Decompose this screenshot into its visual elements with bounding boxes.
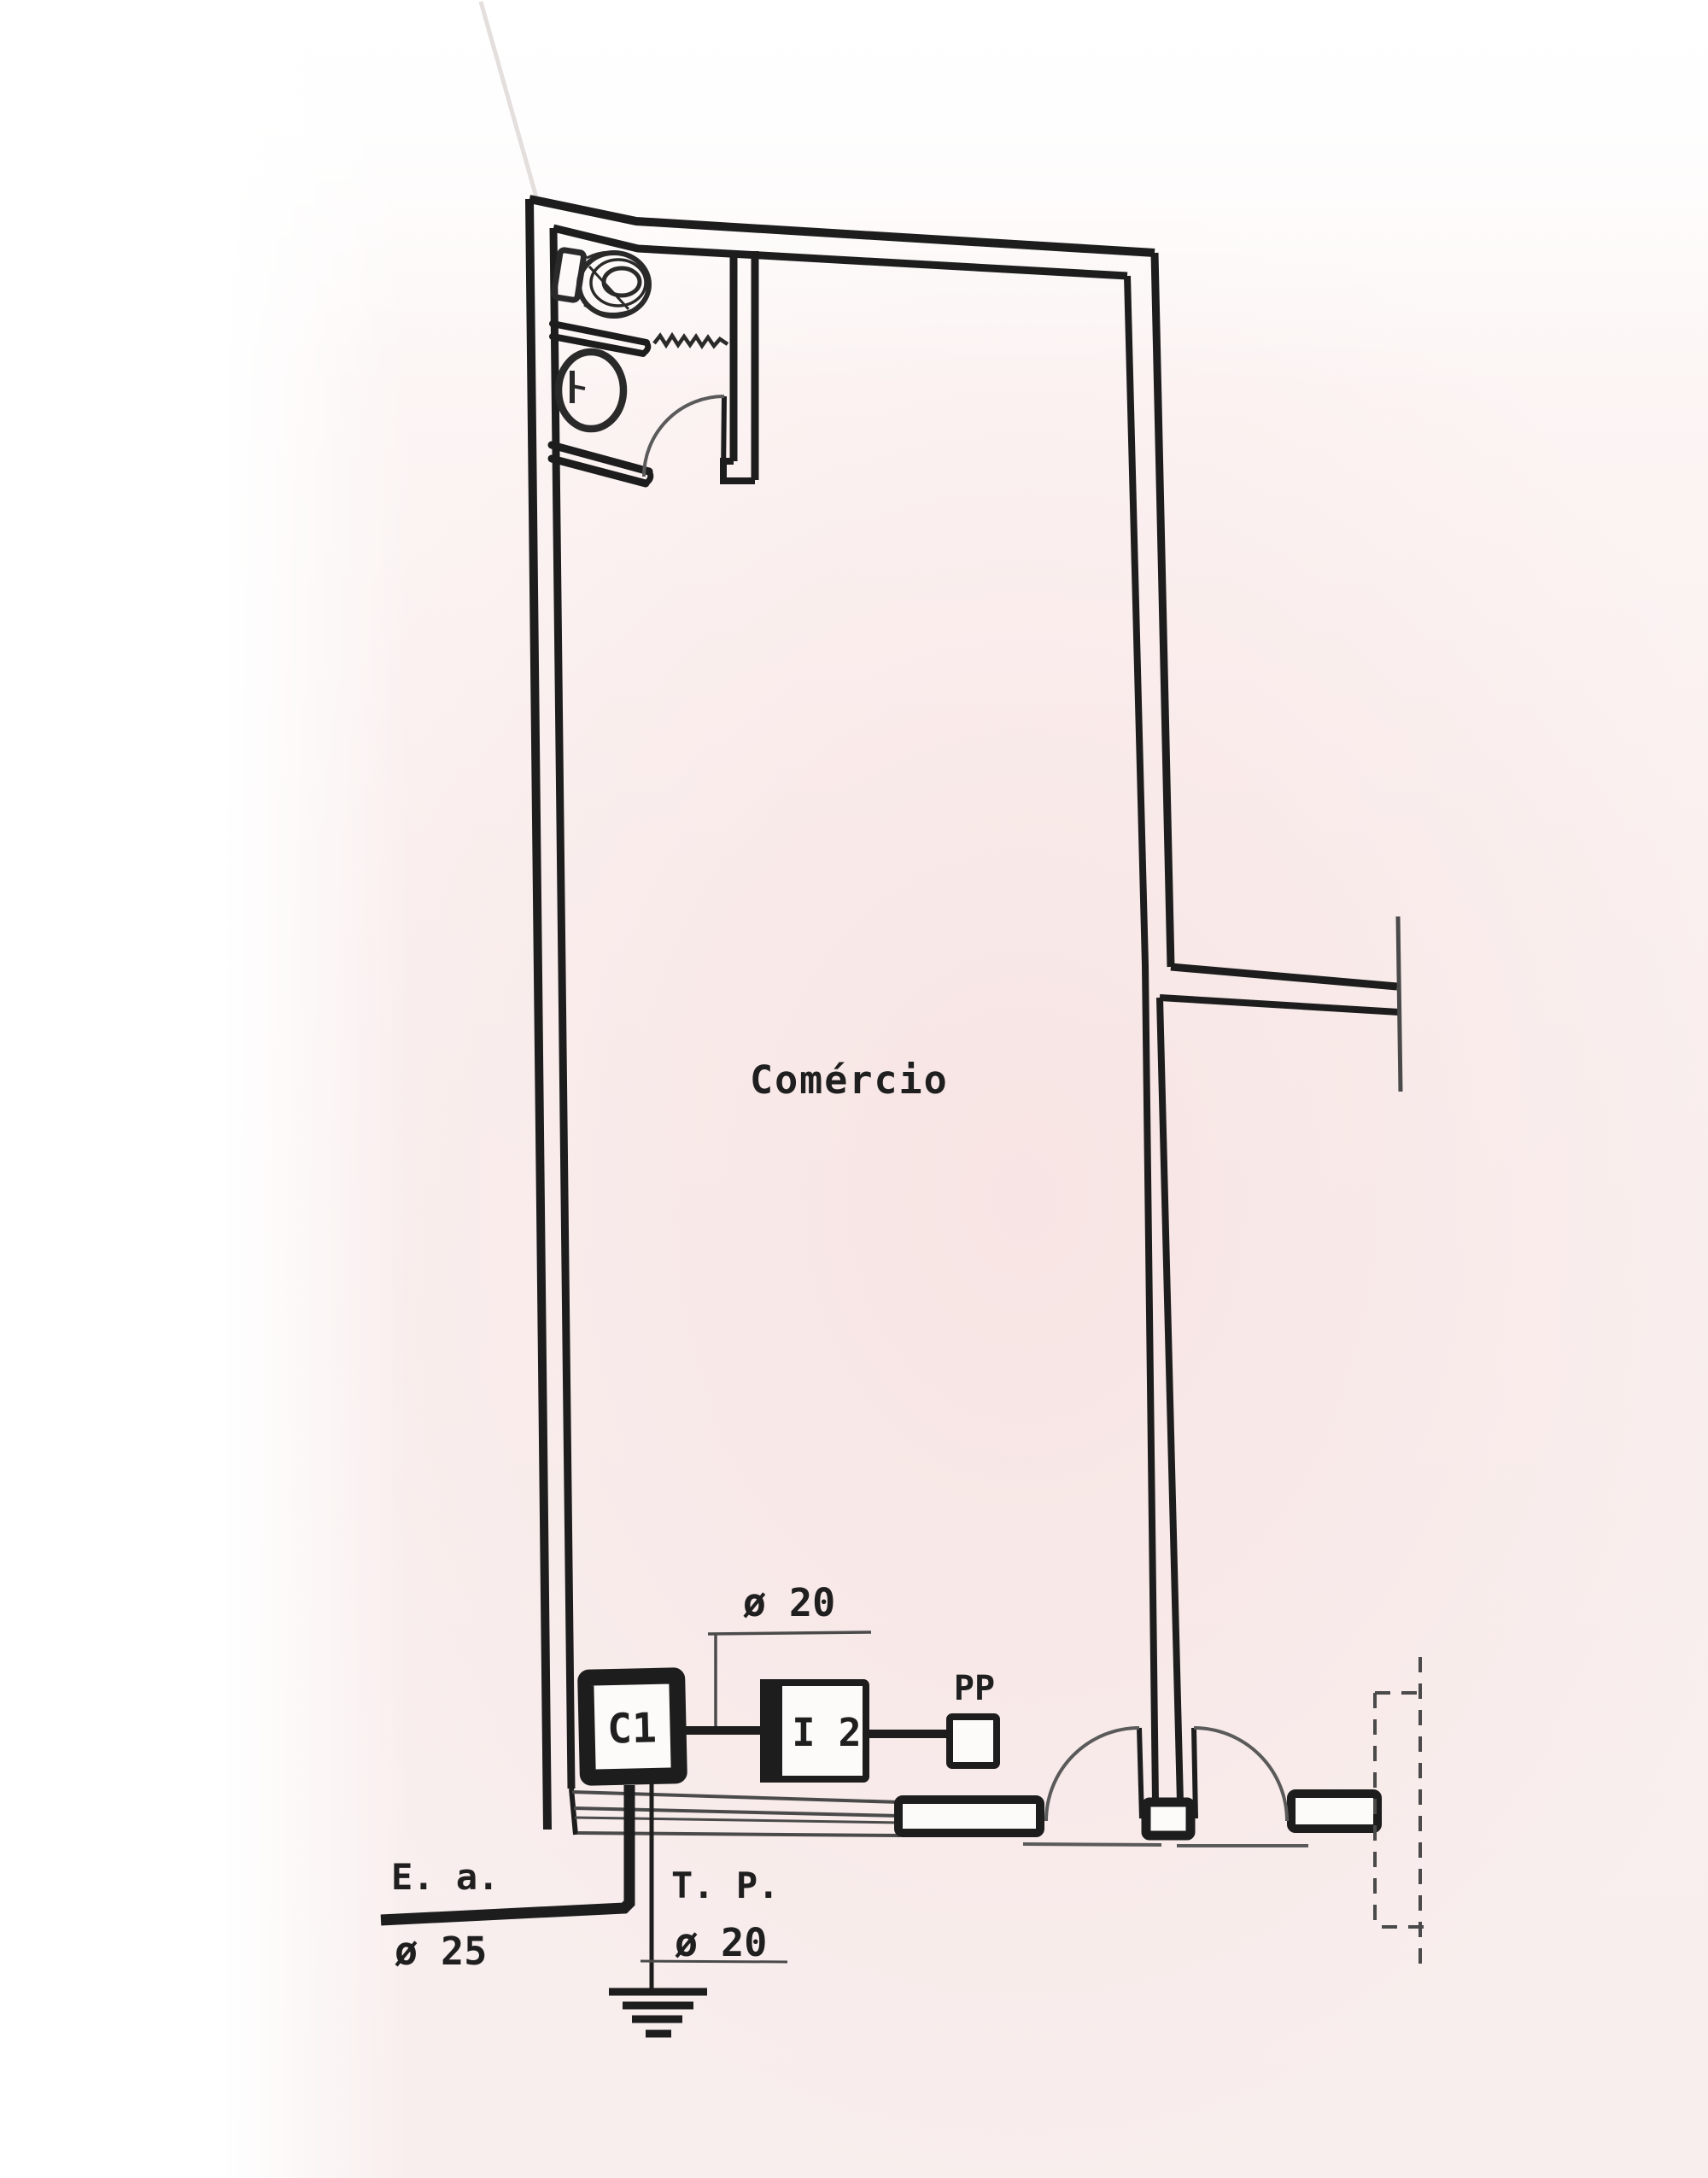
wall-pier-left [898, 1800, 1040, 1833]
wall-center-column [1146, 1802, 1190, 1835]
wall-branch-lower [1160, 998, 1399, 1012]
meter-i2: I 2 [760, 1679, 866, 1783]
dashed-projection-outline [1375, 1657, 1430, 1973]
ground-conduit-dim-label: ø 20 [675, 1920, 767, 1965]
wall-right-outer-upper [1155, 253, 1171, 967]
panel-c1-label: C1 [607, 1704, 658, 1753]
bathroom-partition-wall [553, 324, 648, 354]
right-door-leaf [1194, 1728, 1196, 1818]
wall-left-bottom-jamb [571, 1789, 576, 1835]
scan-crease [481, 2, 536, 197]
storefront-glazing-lines [572, 1792, 900, 1835]
panel-c1: C1 [586, 1676, 680, 1777]
wall-branch-upper [1171, 967, 1397, 987]
bathroom-bottom-wall [552, 445, 651, 483]
bathroom-right-wall [723, 251, 755, 481]
room-label: Comércio [750, 1057, 949, 1103]
left-threshold-line [1023, 1844, 1161, 1845]
bathroom [552, 249, 755, 483]
meter-i2-thick-edge [760, 1679, 782, 1783]
wall-branch-break-line [1398, 916, 1401, 1092]
left-door-leaf [1139, 1728, 1142, 1818]
wall-right-inner [1127, 276, 1155, 1802]
service-entrance-conduit [381, 1785, 629, 1920]
branch-conduit-dim-label: ø 20 [743, 1580, 835, 1625]
pp-box: PP [950, 1669, 997, 1765]
bottom-wall-piers [898, 1794, 1378, 1835]
toilet-symbol [553, 249, 649, 316]
ground-wire-label: T. P. [671, 1865, 779, 1906]
sink-symbol [559, 352, 623, 429]
service-entrance-dim-label: ø 25 [395, 1929, 487, 1974]
service-entrance-label: E. a. [391, 1856, 499, 1898]
right-door-swing-arc [1194, 1728, 1287, 1821]
curtain-zigzag-symbol [654, 336, 728, 346]
wall-left-outer [529, 199, 547, 1830]
door-swing-arc [644, 396, 724, 477]
meter-i2-label: I 2 [792, 1710, 861, 1755]
wall-right-outer-lower [1160, 998, 1180, 1802]
pp-box-label: PP [954, 1669, 995, 1708]
floor-plan-page: C1 I 2 PP Comércio ø 20 E. a. ø 25 T. P.… [0, 0, 1708, 2178]
earth-ground-symbol [609, 1992, 707, 2034]
door-leaf [723, 396, 724, 477]
floor-plan-drawing: C1 I 2 PP Comércio ø 20 E. a. ø 25 T. P.… [0, 0, 1708, 2178]
left-door-swing-arc [1046, 1728, 1139, 1821]
wall-pier-right [1291, 1794, 1378, 1829]
bathroom-door [644, 396, 724, 477]
perimeter-walls [529, 199, 1401, 1835]
